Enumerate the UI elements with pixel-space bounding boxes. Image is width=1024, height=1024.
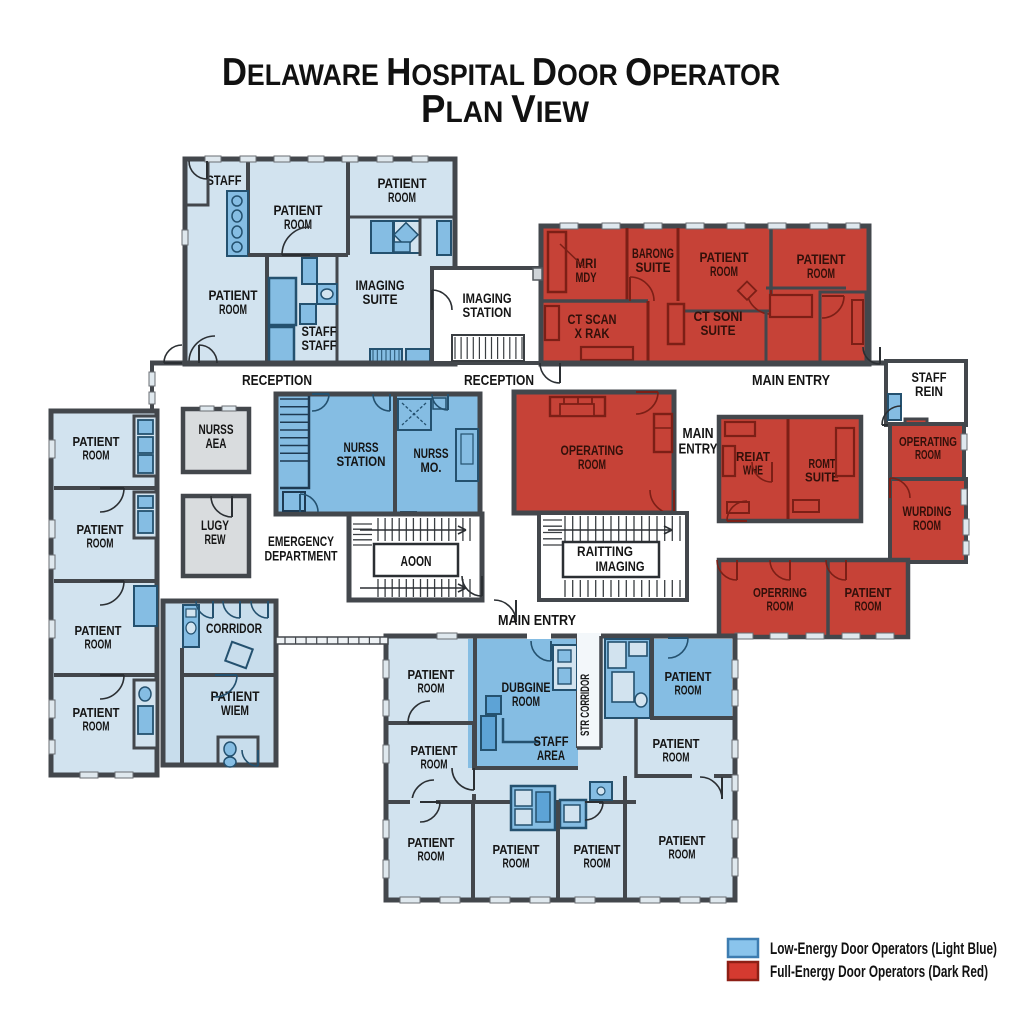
svg-text:IMAGING: IMAGING [463, 291, 512, 306]
svg-text:ROOM: ROOM [710, 264, 738, 279]
svg-text:REIN: REIN [915, 384, 943, 399]
svg-text:STAFF: STAFF [912, 370, 947, 385]
svg-text:ROOM: ROOM [675, 682, 702, 697]
svg-text:ENTRY: ENTRY [679, 440, 718, 457]
svg-text:STAFF: STAFF [302, 338, 337, 353]
svg-text:ROOM: ROOM [807, 266, 835, 281]
svg-text:MAIN ENTRY: MAIN ENTRY [498, 612, 576, 629]
svg-text:ROOM: ROOM [855, 598, 882, 613]
svg-text:ROOM: ROOM [83, 718, 110, 733]
svg-text:X RAK: X RAK [575, 326, 610, 341]
svg-text:SUITE: SUITE [363, 292, 398, 307]
svg-text:ROOM: ROOM [388, 190, 416, 205]
svg-text:SUITE: SUITE [805, 469, 839, 484]
svg-text:ROOM: ROOM [503, 855, 530, 870]
svg-text:CORRIDOR: CORRIDOR [206, 621, 262, 636]
svg-text:MRI: MRI [576, 256, 597, 271]
svg-text:STAFF: STAFF [302, 324, 337, 339]
svg-text:ROOM: ROOM [584, 855, 611, 870]
svg-text:PATIENT: PATIENT [274, 203, 324, 218]
svg-text:PATIENT: PATIENT [797, 252, 847, 267]
svg-text:ROOM: ROOM [418, 848, 445, 863]
svg-text:STAFF: STAFF [534, 734, 569, 749]
svg-text:Low-Energy Door Operators (Lig: Low-Energy Door Operators (Light Blue) [770, 939, 997, 958]
svg-text:RAITTING: RAITTING [577, 544, 633, 559]
svg-text:NURSS: NURSS [344, 440, 379, 455]
svg-text:STR CORRIDOR: STR CORRIDOR [580, 674, 592, 736]
svg-text:RECEPTION: RECEPTION [242, 372, 312, 389]
svg-text:WIEM: WIEM [221, 703, 249, 718]
svg-text:AEA: AEA [206, 436, 227, 451]
svg-text:NURSS: NURSS [199, 422, 234, 437]
svg-text:PATIENT: PATIENT [700, 250, 750, 265]
svg-text:IMAGING: IMAGING [356, 278, 405, 293]
svg-text:STATION: STATION [463, 305, 512, 320]
svg-text:WURDING: WURDING [903, 504, 952, 519]
svg-text:BARONG: BARONG [632, 246, 674, 261]
svg-text:ROOM: ROOM [85, 636, 112, 651]
svg-text:ROOM: ROOM [421, 756, 448, 771]
svg-text:STATION: STATION [337, 454, 386, 469]
svg-text:REW: REW [205, 532, 226, 547]
svg-text:ROOM: ROOM [913, 518, 941, 533]
svg-text:CT SONI: CT SONI [694, 309, 743, 324]
svg-text:MAIN ENTRY: MAIN ENTRY [752, 372, 830, 389]
svg-text:PATIENT: PATIENT [378, 176, 428, 191]
svg-text:PATIENT: PATIENT [209, 288, 259, 303]
svg-text:Full-Energy Door Operators (Da: Full-Energy Door Operators (Dark Red) [770, 962, 988, 981]
svg-text:IMAGING: IMAGING [596, 559, 645, 574]
svg-text:DUBGINE: DUBGINE [502, 680, 551, 695]
svg-text:STAFF: STAFF [207, 173, 242, 188]
svg-text:SUITE: SUITE [636, 260, 671, 275]
svg-text:RECEPTION: RECEPTION [464, 372, 534, 389]
svg-text:ROOM: ROOM [669, 846, 696, 861]
svg-text:NURSS: NURSS [414, 446, 449, 461]
svg-text:AREA: AREA [537, 748, 565, 763]
svg-text:ROOM: ROOM [512, 694, 540, 709]
svg-text:SUITE: SUITE [701, 323, 736, 338]
svg-text:CT SCAN: CT SCAN [568, 312, 617, 327]
svg-text:ROOM: ROOM [663, 749, 690, 764]
svg-text:MDY: MDY [576, 270, 597, 285]
svg-text:ROOM: ROOM [915, 448, 941, 462]
svg-text:ROOM: ROOM [83, 447, 110, 462]
svg-text:ROOM: ROOM [578, 457, 606, 472]
svg-text:AOON: AOON [401, 553, 432, 570]
svg-text:LUGY: LUGY [201, 518, 229, 533]
svg-text:ROOM: ROOM [87, 535, 114, 550]
svg-text:ROOM: ROOM [767, 598, 794, 613]
svg-text:DEPARTMENT: DEPARTMENT [265, 547, 338, 563]
svg-text:OPERATING: OPERATING [561, 443, 624, 458]
svg-text:ROOM: ROOM [418, 680, 445, 695]
svg-text:MO.: MO. [421, 460, 442, 475]
svg-text:ROOM: ROOM [219, 302, 247, 317]
